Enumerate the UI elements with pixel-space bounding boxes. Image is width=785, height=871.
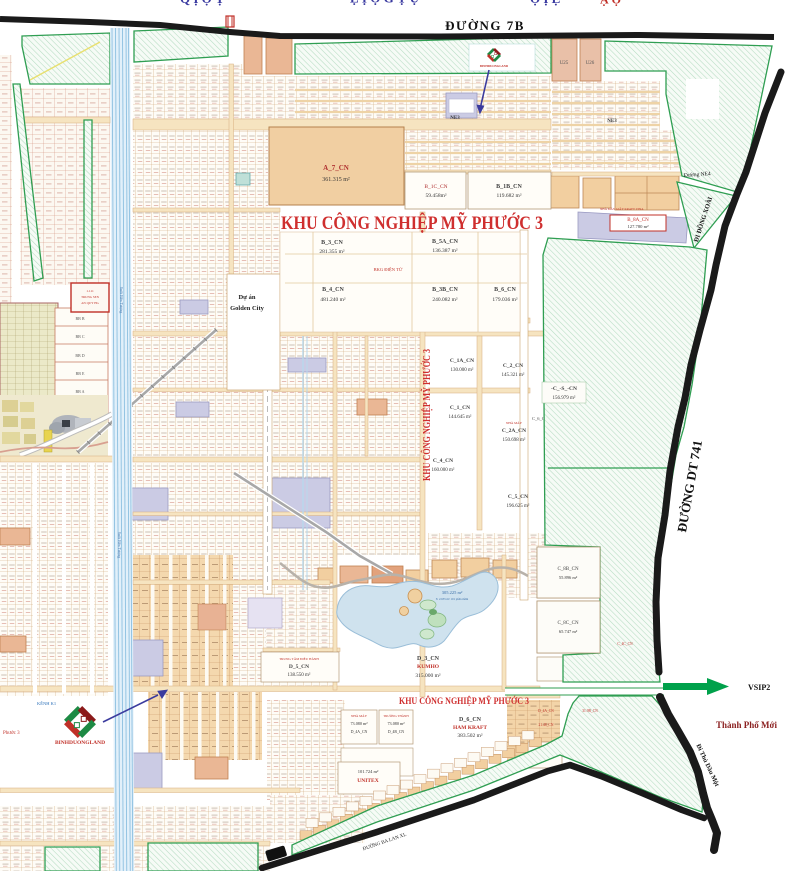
svg-text:145.321 m²: 145.321 m² bbox=[502, 372, 525, 378]
svg-text:160.000 m²: 160.000 m² bbox=[432, 467, 455, 473]
svg-text:B_5A_CN: B_5A_CN bbox=[432, 239, 459, 245]
svg-text:Q Ị Ọ Ỵ: Q Ị Ọ Ỵ bbox=[180, 0, 225, 6]
svg-text:A_7_CN: A_7_CN bbox=[323, 164, 349, 172]
svg-text:C_2A_CN: C_2A_CN bbox=[502, 428, 526, 434]
svg-text:B_3_CN: B_3_CN bbox=[321, 240, 343, 246]
svg-text:Suối Bến Tượng: Suối Bến Tượng bbox=[119, 287, 124, 313]
svg-text:D_6_CN: D_6_CN bbox=[459, 717, 482, 723]
svg-text:156.979 m²: 156.979 m² bbox=[553, 395, 576, 401]
svg-text:BB D: BB D bbox=[75, 353, 84, 358]
svg-text:BINHDUONGLAND: BINHDUONGLAND bbox=[55, 740, 105, 746]
svg-text:B_8A_CN: B_8A_CN bbox=[627, 218, 649, 223]
svg-text:B_1B_CN: B_1B_CN bbox=[496, 184, 522, 190]
svg-text:C_1A_CN: C_1A_CN bbox=[450, 358, 474, 364]
svg-text:73.080 m²: 73.080 m² bbox=[350, 721, 368, 726]
svg-text:B_3B_CN: B_3B_CN bbox=[432, 287, 458, 293]
svg-text:65.747 m²: 65.747 m² bbox=[559, 629, 578, 634]
svg-text:C_2_CN: C_2_CN bbox=[503, 363, 523, 369]
svg-text:D_3_CN: D_3_CN bbox=[417, 656, 440, 662]
svg-text:U25: U25 bbox=[560, 61, 569, 66]
svg-text:BKG ĐIỆN TỬ: BKG ĐIỆN TỬ bbox=[374, 267, 403, 272]
svg-text:BB E: BB E bbox=[76, 371, 85, 376]
svg-text:59.458m²: 59.458m² bbox=[425, 193, 446, 199]
svg-text:NE3: NE3 bbox=[450, 116, 460, 121]
svg-text:KÊNH K1: KÊNH K1 bbox=[37, 701, 56, 706]
svg-text:TRUNG SEN: TRUNG SEN bbox=[81, 295, 99, 299]
svg-text:-C_-S_-CN: -C_-S_-CN bbox=[551, 386, 577, 392]
svg-text:TRƯỜNG THÀNH: TRƯỜNG THÀNH bbox=[383, 713, 409, 718]
svg-text:481.240 m²: 481.240 m² bbox=[320, 297, 346, 303]
svg-text:UNITEX: UNITEX bbox=[357, 778, 378, 784]
svg-text:S: 2.635 m² 101 phần mềm: S: 2.635 m² 101 phần mềm bbox=[436, 597, 469, 601]
svg-text:B_6_CN: B_6_CN bbox=[494, 287, 516, 293]
svg-text:BINHDUONGLAND: BINHDUONGLAND bbox=[480, 64, 509, 68]
svg-text:BB C: BB C bbox=[75, 334, 84, 339]
svg-text:D_4A_CN: D_4A_CN bbox=[351, 730, 368, 734]
svg-text:Thành Phố Mới: Thành Phố Mới bbox=[716, 720, 778, 730]
svg-text:NHÀ MÁY: NHÀ MÁY bbox=[351, 713, 368, 718]
svg-text:KHU CÔNG NGHIỆP MỸ PHƯỚC 3: KHU CÔNG NGHIỆP MỸ PHƯỚC 3 bbox=[420, 349, 433, 481]
svg-text:HAM KRAFT: HAM KRAFT bbox=[453, 725, 487, 731]
svg-text:315.000 m²: 315.000 m² bbox=[415, 673, 441, 679]
svg-text:KUMHO: KUMHO bbox=[417, 664, 440, 670]
svg-text:Suối Bến Tượng: Suối Bến Tượng bbox=[117, 532, 122, 558]
svg-text:361.315 m²: 361.315 m² bbox=[322, 177, 350, 183]
svg-text:AN QUY HG: AN QUY HG bbox=[81, 301, 99, 305]
svg-text:101.724 m²: 101.724 m² bbox=[358, 769, 379, 774]
svg-text:C_4C_CN: C_4C_CN bbox=[617, 642, 633, 646]
svg-text:NHÀ MÁY: NHÀ MÁY bbox=[506, 420, 523, 425]
svg-text:144.645 m²: 144.645 m² bbox=[449, 414, 472, 420]
svg-text:BB B: BB B bbox=[75, 316, 84, 321]
svg-text:21.48_CN: 21.48_CN bbox=[539, 723, 554, 727]
svg-text:119.682 m²: 119.682 m² bbox=[497, 193, 522, 199]
svg-text:196.625 m²: 196.625 m² bbox=[507, 503, 530, 509]
svg-text:127.780 m²: 127.780 m² bbox=[627, 224, 649, 229]
svg-text:NHÀ MÁY GIẤY KRAFT VINA: NHÀ MÁY GIẤY KRAFT VINA bbox=[600, 206, 644, 211]
svg-text:D_4A_CN: D_4A_CN bbox=[538, 709, 554, 713]
svg-text:383.502 m²: 383.502 m² bbox=[457, 733, 483, 739]
svg-text:138.550 m²: 138.550 m² bbox=[288, 672, 311, 678]
svg-text:Ạ Ọ: Ạ Ọ bbox=[600, 0, 621, 6]
svg-text:BB A: BB A bbox=[75, 389, 84, 394]
svg-text:Dự án: Dự án bbox=[238, 294, 255, 301]
svg-text:B_4_CN: B_4_CN bbox=[322, 287, 344, 293]
svg-text:C_1_CN: C_1_CN bbox=[450, 405, 470, 411]
svg-text:D_5_CN: D_5_CN bbox=[289, 664, 309, 670]
svg-text:C_8B_CN: C_8B_CN bbox=[557, 567, 579, 572]
svg-text:31.9B_CN: 31.9B_CN bbox=[582, 709, 598, 713]
svg-text:73.080 m²: 73.080 m² bbox=[387, 721, 405, 726]
svg-text:130.000 m²: 130.000 m² bbox=[451, 367, 474, 373]
svg-text:ĐƯỜNG 7B: ĐƯỜNG 7B bbox=[445, 18, 525, 33]
svg-text:1.111: 1.111 bbox=[86, 289, 94, 293]
svg-text:U26: U26 bbox=[586, 61, 595, 66]
svg-text:B_1C_CN: B_1C_CN bbox=[424, 184, 447, 190]
svg-text:TRUNG TÂM ĐIỀU HÀNH: TRUNG TÂM ĐIỀU HÀNH bbox=[279, 656, 319, 661]
svg-text:NE3: NE3 bbox=[607, 119, 617, 124]
svg-text:179.036 m²: 179.036 m² bbox=[492, 297, 518, 303]
svg-text:C_5_CN: C_5_CN bbox=[508, 494, 528, 500]
svg-text:Ọ Ị Ẹ: Ọ Ị Ẹ bbox=[530, 0, 560, 6]
svg-text:150.698 m²: 150.698 m² bbox=[503, 437, 526, 443]
svg-text:Ẹ Ị Ọ G Ỵ Ụ: Ẹ Ị Ọ G Ỵ Ụ bbox=[350, 0, 420, 6]
svg-text:VSIP2: VSIP2 bbox=[748, 683, 770, 692]
svg-text:Golden City: Golden City bbox=[230, 305, 265, 312]
svg-text:240.082 m²: 240.082 m² bbox=[432, 297, 458, 303]
svg-text:136.387 m²: 136.387 m² bbox=[432, 248, 458, 254]
svg-text:281.355 m²: 281.355 m² bbox=[319, 249, 345, 255]
svg-text:KHU CÔNG NGHIỆP MỸ PHƯỚC 3: KHU CÔNG NGHIỆP MỸ PHƯỚC 3 bbox=[281, 212, 543, 234]
svg-text:55.896 m²: 55.896 m² bbox=[559, 575, 578, 580]
svg-text:C_8C_CN: C_8C_CN bbox=[557, 621, 579, 626]
svg-text:C_4_CN: C_4_CN bbox=[433, 458, 453, 464]
svg-text:305.225 m²: 305.225 m² bbox=[442, 590, 463, 595]
svg-text:D_4B_CN: D_4B_CN bbox=[388, 730, 405, 734]
svg-text:Phước 3: Phước 3 bbox=[3, 731, 20, 736]
